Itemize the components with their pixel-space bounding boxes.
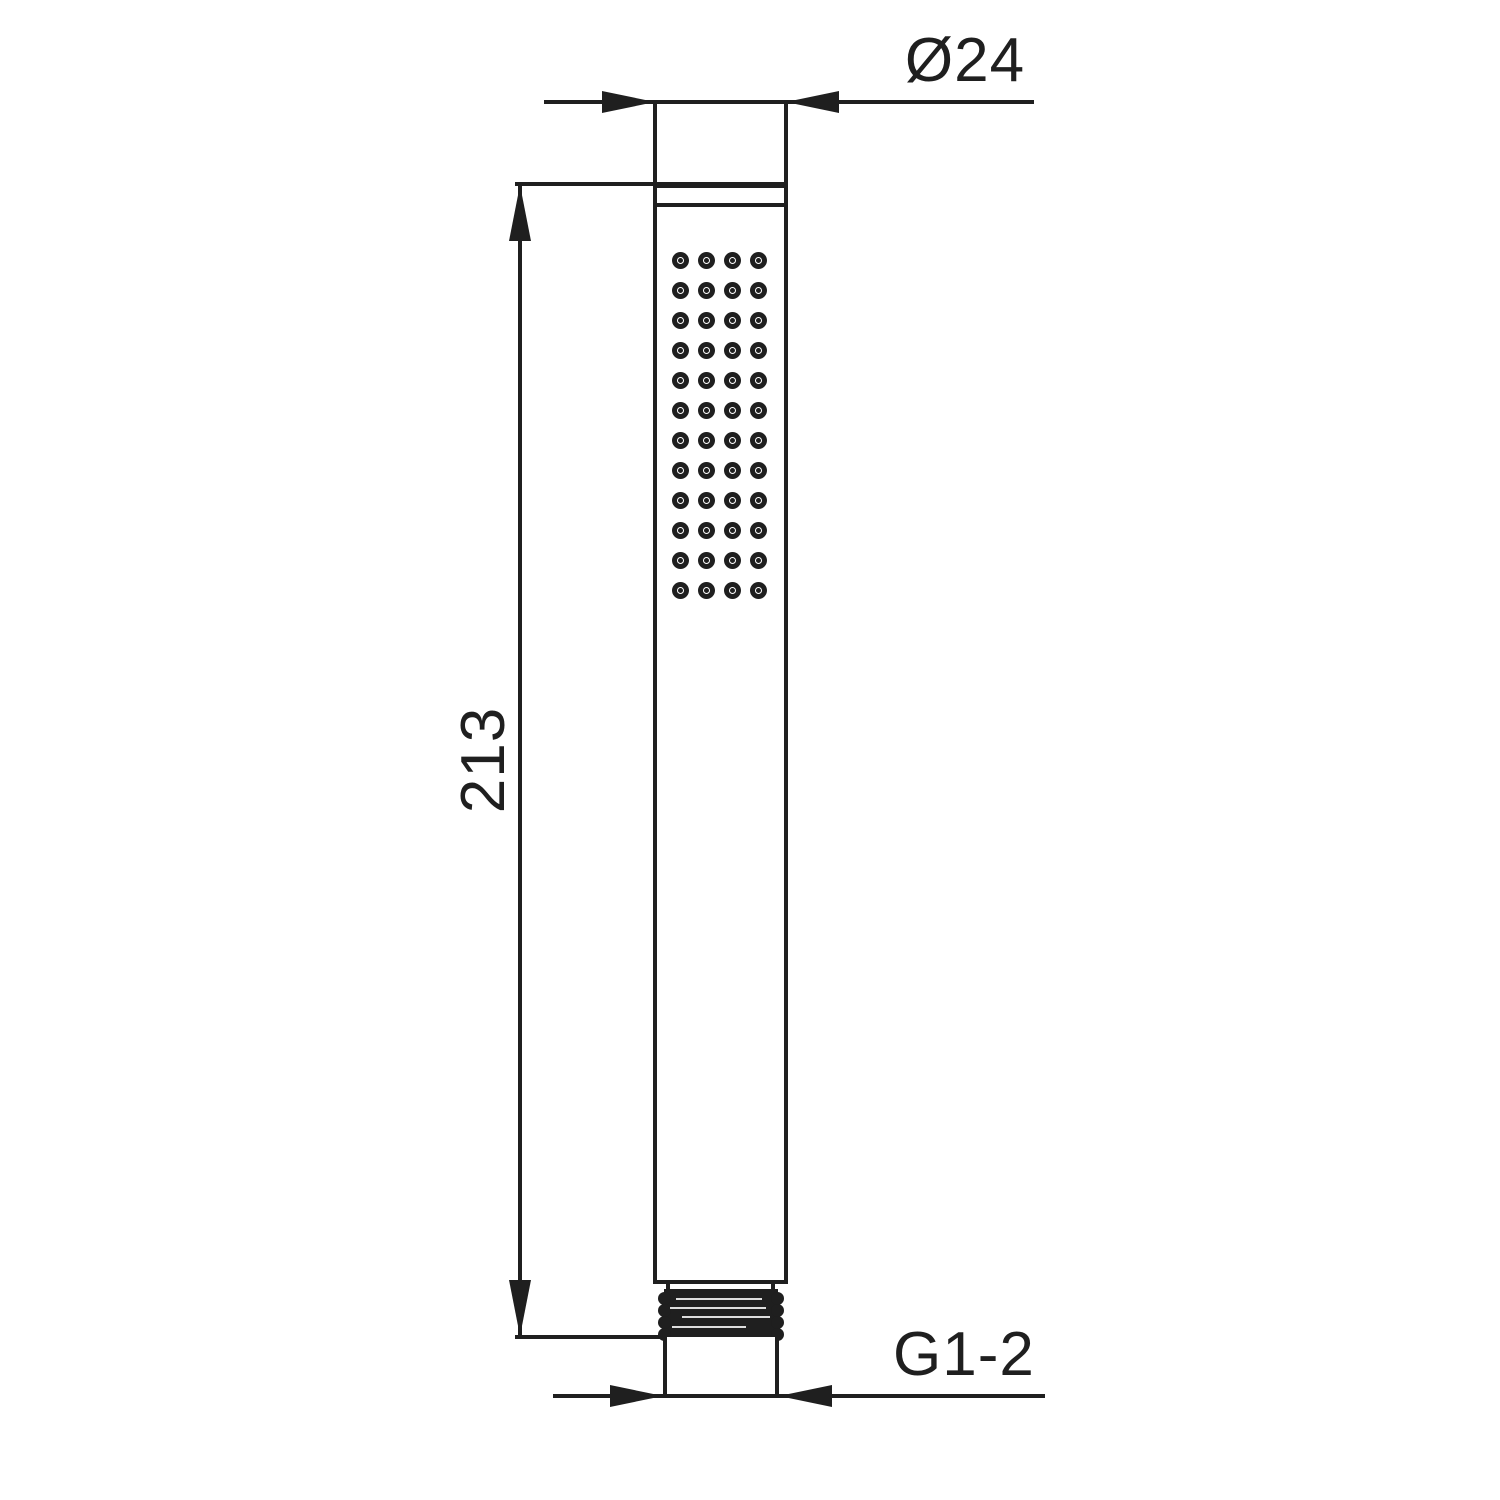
thread-section: [664, 1289, 778, 1337]
spray-nozzle: [672, 282, 689, 299]
technical-drawing-canvas: Ø24 213 G1-2: [0, 0, 1500, 1500]
spray-nozzle: [724, 372, 741, 389]
diameter-extension-line-left: [653, 100, 657, 188]
spray-nozzle: [698, 522, 715, 539]
spray-nozzle: [672, 372, 689, 389]
spray-nozzle: [672, 432, 689, 449]
spray-nozzle: [750, 342, 767, 359]
spray-nozzle: [750, 462, 767, 479]
spray-nozzle: [750, 372, 767, 389]
spray-nozzle: [724, 582, 741, 599]
thread-dimension-label: G1-2: [893, 1324, 1033, 1386]
spray-nozzle: [750, 492, 767, 509]
spray-nozzle: [750, 252, 767, 269]
thread-highlight: [672, 1326, 746, 1328]
spray-nozzle: [698, 252, 715, 269]
spray-nozzle: [672, 582, 689, 599]
thread-arrowhead-left: [610, 1385, 663, 1407]
spray-nozzle: [750, 402, 767, 419]
spray-nozzle: [724, 282, 741, 299]
length-arrowhead-top: [509, 185, 531, 241]
spray-nozzle: [724, 402, 741, 419]
spray-nozzle: [750, 522, 767, 539]
spray-nozzle: [672, 342, 689, 359]
diameter-arrowhead-right: [786, 91, 839, 113]
spray-nozzle: [750, 432, 767, 449]
spray-nozzle: [724, 342, 741, 359]
spray-nozzle: [672, 312, 689, 329]
diameter-dimension-label: Ø24: [895, 30, 1035, 92]
spray-nozzle: [698, 552, 715, 569]
spray-nozzle: [724, 432, 741, 449]
spray-nozzle: [672, 402, 689, 419]
head-cap-seam-line: [657, 203, 784, 207]
thread-highlight: [670, 1307, 766, 1309]
spray-nozzle: [698, 462, 715, 479]
length-dimension-label: 213: [453, 690, 515, 830]
spray-nozzle: [672, 462, 689, 479]
spray-nozzle: [724, 312, 741, 329]
spray-nozzle: [672, 552, 689, 569]
thread-highlight: [682, 1316, 770, 1318]
spray-nozzle: [698, 282, 715, 299]
thread-arrowhead-right: [779, 1385, 832, 1407]
spray-nozzle: [724, 462, 741, 479]
spray-nozzle: [724, 492, 741, 509]
spray-nozzle: [698, 492, 715, 509]
spray-nozzle: [672, 492, 689, 509]
spray-nozzle: [750, 282, 767, 299]
thread-highlight: [676, 1298, 762, 1300]
diameter-arrowhead-left: [602, 91, 655, 113]
spray-nozzle: [750, 552, 767, 569]
outlet-connector: [663, 1337, 779, 1397]
spray-nozzle: [698, 582, 715, 599]
spray-nozzle: [698, 342, 715, 359]
length-arrowhead-bottom: [509, 1280, 531, 1336]
spray-nozzle: [750, 312, 767, 329]
spray-nozzle: [724, 252, 741, 269]
spray-nozzle: [698, 312, 715, 329]
length-dimension-line: [518, 184, 522, 1337]
spray-nozzle: [698, 432, 715, 449]
spray-nozzle: [672, 522, 689, 539]
spray-nozzle: [750, 582, 767, 599]
spray-nozzle: [698, 402, 715, 419]
spray-nozzle: [724, 522, 741, 539]
spray-nozzle: [724, 552, 741, 569]
diameter-extension-line-right: [784, 100, 788, 188]
spray-nozzle: [698, 372, 715, 389]
spray-nozzle: [672, 252, 689, 269]
